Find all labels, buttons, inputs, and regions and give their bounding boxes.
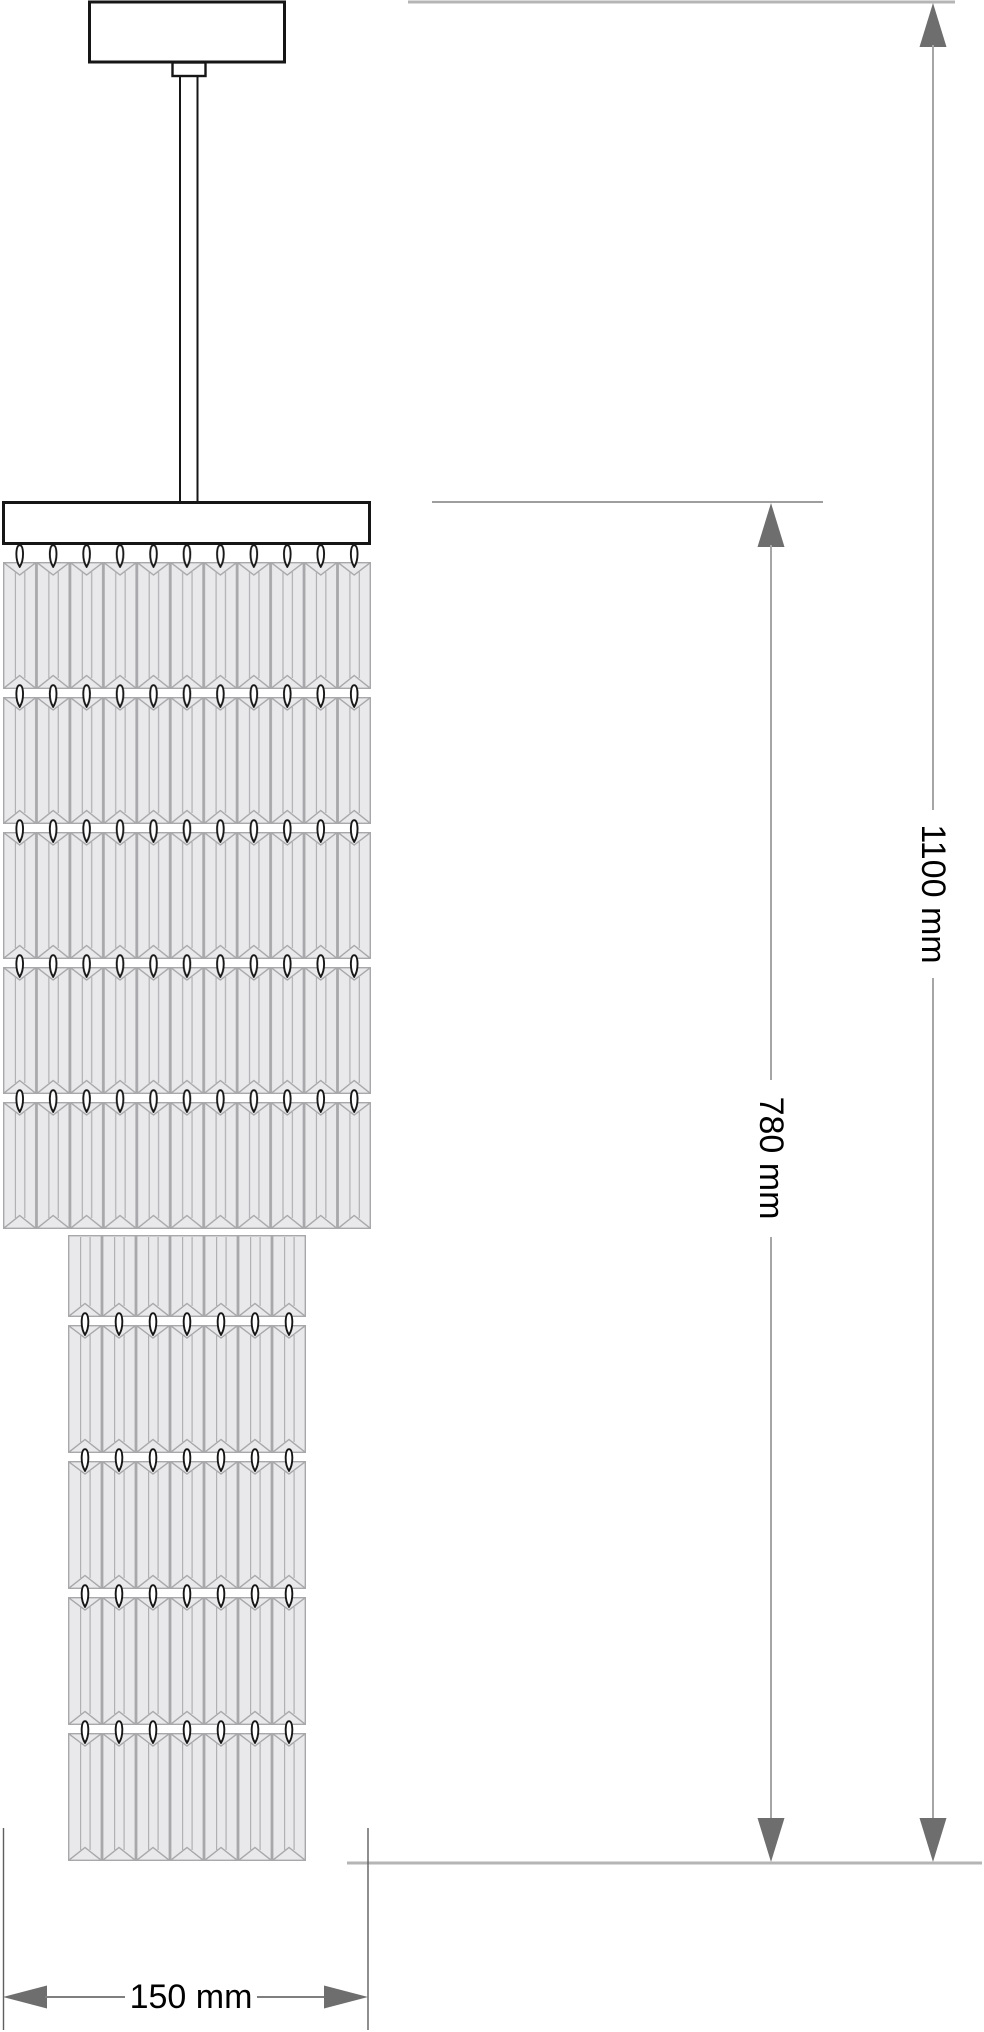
arrowhead-up [758,503,785,547]
crystal-row [3,1102,371,1229]
arrowhead-down [920,1818,947,1862]
crystal-row [68,1461,306,1589]
crystal-row [3,967,371,1094]
crystal-row [68,1597,306,1725]
arrowhead-down [758,1818,785,1862]
rod-collar [173,63,206,77]
dimension-crystal-height: 780 mm [432,502,823,1862]
crystal-row [3,832,371,959]
dimension-label-crystal-height: 780 mm [752,1097,790,1220]
crystal-row [3,562,371,689]
hook-row [68,1448,306,1472]
arrowhead-right [324,1986,368,2009]
hook-row [3,684,371,708]
upper-crystal-tier [3,562,371,1229]
arrowhead-up [920,3,947,47]
hook-row [3,954,371,978]
arrowhead-left [3,1986,47,2009]
crystal-frame-plate [4,503,370,544]
chandelier-dimension-drawing: 1100 mm 780 mm 150 mm [0,0,984,2032]
crystal-row [68,1325,306,1453]
hook-row [3,544,371,568]
crystal-row [68,1235,306,1317]
suspension-rod [180,74,198,503]
drawing-canvas: 1100 mm 780 mm 150 mm [0,0,984,2032]
dimension-overall-height: 1100 mm [408,2,955,1862]
hook-row [3,819,371,843]
hook-row [68,1720,306,1744]
dimension-label-width: 150 mm [130,1978,253,2016]
ceiling-canopy [90,2,285,62]
hook-row [3,1089,371,1113]
crystal-row [3,697,371,824]
dimension-label-overall-height: 1100 mm [914,824,952,963]
hook-row [68,1312,306,1336]
fixture-body [3,2,371,1861]
hook-row [68,1584,306,1608]
crystal-row [68,1733,306,1861]
